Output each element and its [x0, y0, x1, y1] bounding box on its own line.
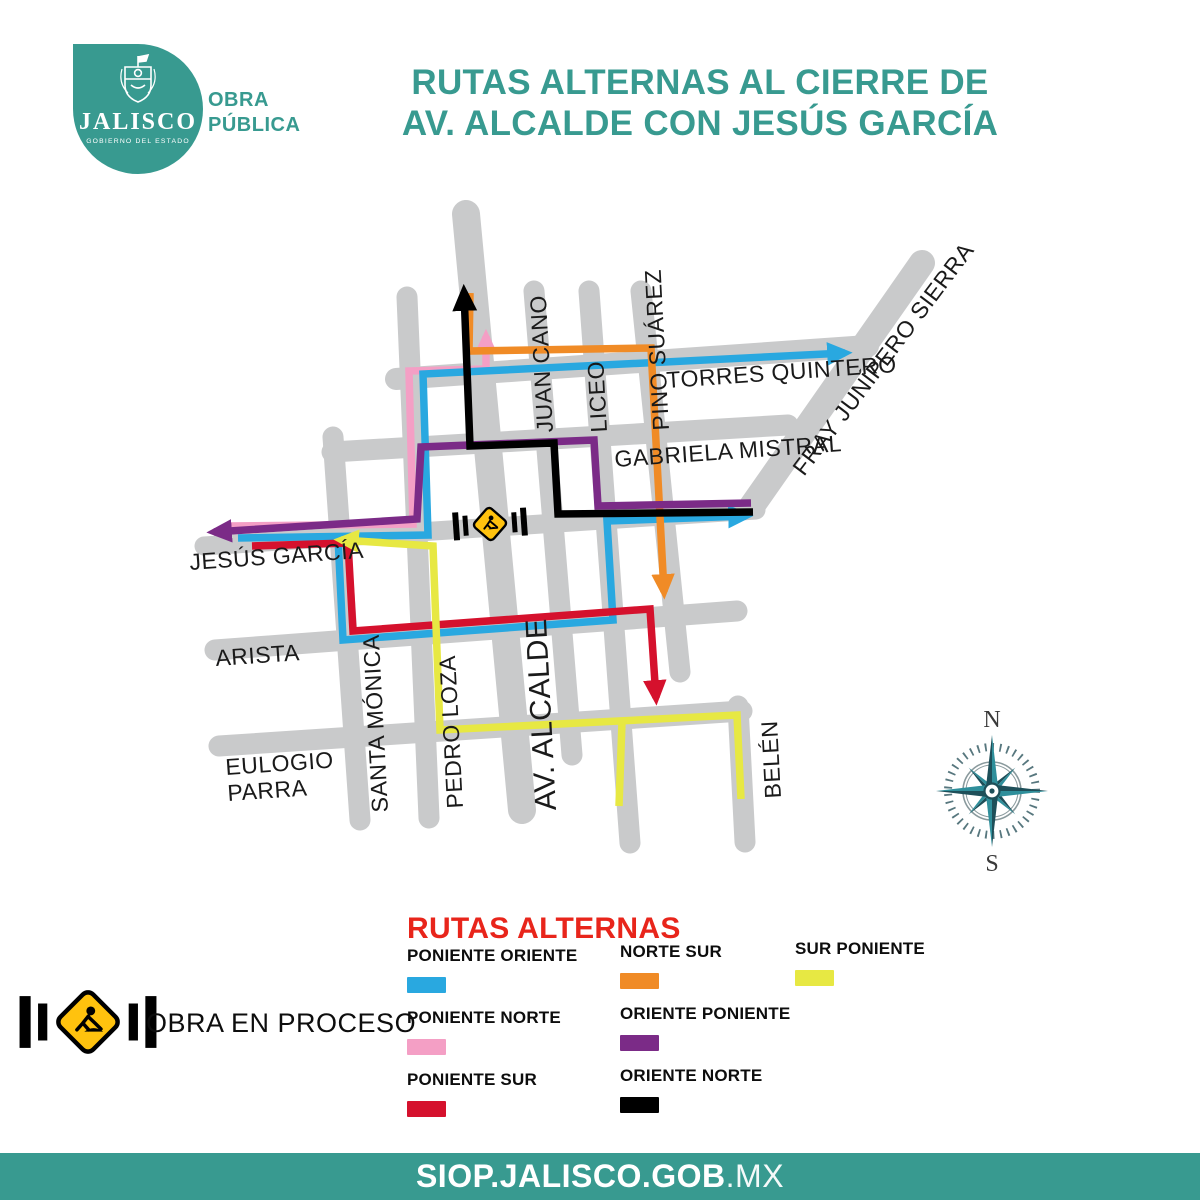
obra-en-proceso-label: OBRA EN PROCESO [146, 1008, 416, 1039]
legend-item: SUR PONIENTE [795, 939, 925, 986]
title-line1: RUTAS ALTERNAS AL CIERRE DE [370, 62, 1030, 103]
legend-item-label: PONIENTE ORIENTE [407, 946, 577, 966]
label-eulogio-parra-2: PARRA [227, 774, 309, 806]
label-liceo: LICEO [582, 360, 612, 433]
legend-item-label: PONIENTE NORTE [407, 1008, 577, 1028]
dept-label: OBRA PÚBLICA [208, 88, 300, 138]
legend-item: NORTE SUR [620, 942, 790, 989]
legend-column-1: PONIENTE ORIENTE PONIENTE NORTE PONIENTE… [407, 946, 577, 1132]
jalisco-logo: JALISCO GOBIERNO DEL ESTADO [73, 44, 203, 174]
jalisco-coat-of-arms-icon [115, 54, 161, 106]
legend-item-label: NORTE SUR [620, 942, 790, 962]
label-pedro-loza: PEDRO LOZA [434, 655, 468, 810]
legend-swatch-poniente-sur [407, 1101, 446, 1117]
legend-swatch-poniente-norte [407, 1039, 446, 1055]
label-juan-cano: JUAN CANO [525, 295, 558, 434]
page-title: RUTAS ALTERNAS AL CIERRE DE AV. ALCALDE … [370, 62, 1030, 144]
title-line2: AV. ALCALDE CON JESÚS GARCÍA [370, 103, 1030, 144]
route-sur-poniente-spur [619, 722, 622, 806]
compass-north-label: N [983, 707, 1000, 733]
legend-column-2: NORTE SUR ORIENTE PONIENTE ORIENTE NORTE [620, 942, 790, 1128]
legend-item: PONIENTE SUR [407, 1070, 577, 1117]
dept-line2: PÚBLICA [208, 113, 300, 138]
legend-item: PONIENTE ORIENTE [407, 946, 577, 993]
legend-swatch-norte-sur [620, 973, 659, 989]
legend-item: ORIENTE NORTE [620, 1066, 790, 1113]
legend-swatch-oriente-poniente [620, 1035, 659, 1051]
legend-item-label: SUR PONIENTE [795, 939, 925, 959]
compass-south-label: S [985, 851, 998, 877]
legend-title: RUTAS ALTERNAS [407, 912, 681, 946]
legend-swatch-poniente-oriente [407, 977, 446, 993]
compass-rose: N S [936, 707, 1048, 877]
legend-item: ORIENTE PONIENTE [620, 1004, 790, 1051]
footer-domain: SIOP.JALISCO.GOB [416, 1158, 726, 1194]
legend-swatch-oriente-norte [620, 1097, 659, 1113]
logo-state-name: JALISCO [73, 109, 203, 136]
legend-item-label: PONIENTE SUR [407, 1070, 577, 1090]
dept-line1: OBRA [208, 88, 300, 113]
legend-swatch-sur-poniente [795, 970, 834, 986]
label-belen: BELÉN [756, 720, 786, 799]
legend-column-3: SUR PONIENTE [795, 939, 925, 1001]
footer-domain-suffix: .MX [726, 1158, 784, 1194]
legend-item: PONIENTE NORTE [407, 1008, 577, 1055]
obra-en-proceso-icon [20, 989, 157, 1054]
footer-bar: SIOP.JALISCO.GOB.MX [0, 1153, 1200, 1200]
logo-motto: GOBIERNO DEL ESTADO [73, 138, 203, 145]
legend-item-label: ORIENTE NORTE [620, 1066, 790, 1086]
label-arista: ARISTA [215, 639, 301, 671]
legend-item-label: ORIENTE PONIENTE [620, 1004, 790, 1024]
